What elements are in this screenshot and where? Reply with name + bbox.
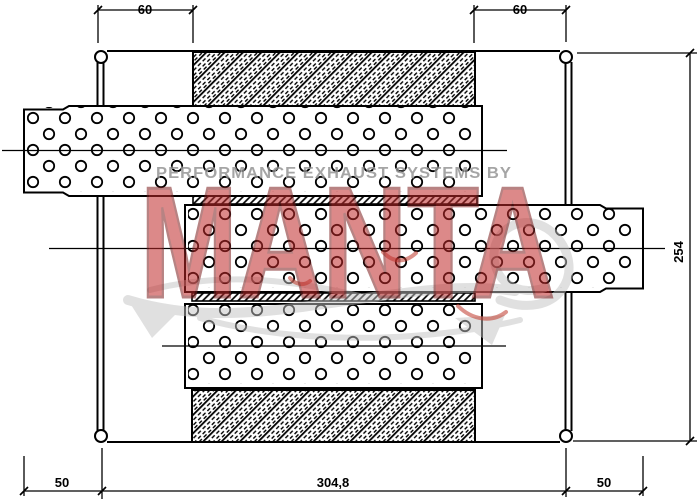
seam-corner-top-right (560, 51, 572, 63)
watermark: PERFORMANCE EXHAUST SYSTEMS BY MANTA (128, 155, 569, 345)
drawing-canvas: 60 60 50 304,8 50 254 PERFORMANCE EXHAUS… (0, 0, 700, 499)
dim-bottom-right-label: 50 (597, 475, 611, 490)
bottom-packing-hatch (192, 390, 475, 442)
seam-corner-top-left (95, 51, 107, 63)
seam-corner-bottom-left (95, 430, 107, 442)
watermark-brand: MANTA (140, 155, 555, 331)
top-packing-hatch (193, 52, 475, 106)
dim-top-right-label: 60 (513, 2, 527, 17)
dim-top-left-label: 60 (138, 2, 152, 17)
muffler-technical-drawing: 60 60 50 304,8 50 254 PERFORMANCE EXHAUS… (0, 0, 700, 499)
seam-corner-bottom-right (560, 430, 572, 442)
dim-right-vertical-label: 254 (671, 240, 686, 262)
dim-bottom-left-label: 50 (55, 475, 69, 490)
dim-bottom-center-label: 304,8 (317, 475, 350, 490)
